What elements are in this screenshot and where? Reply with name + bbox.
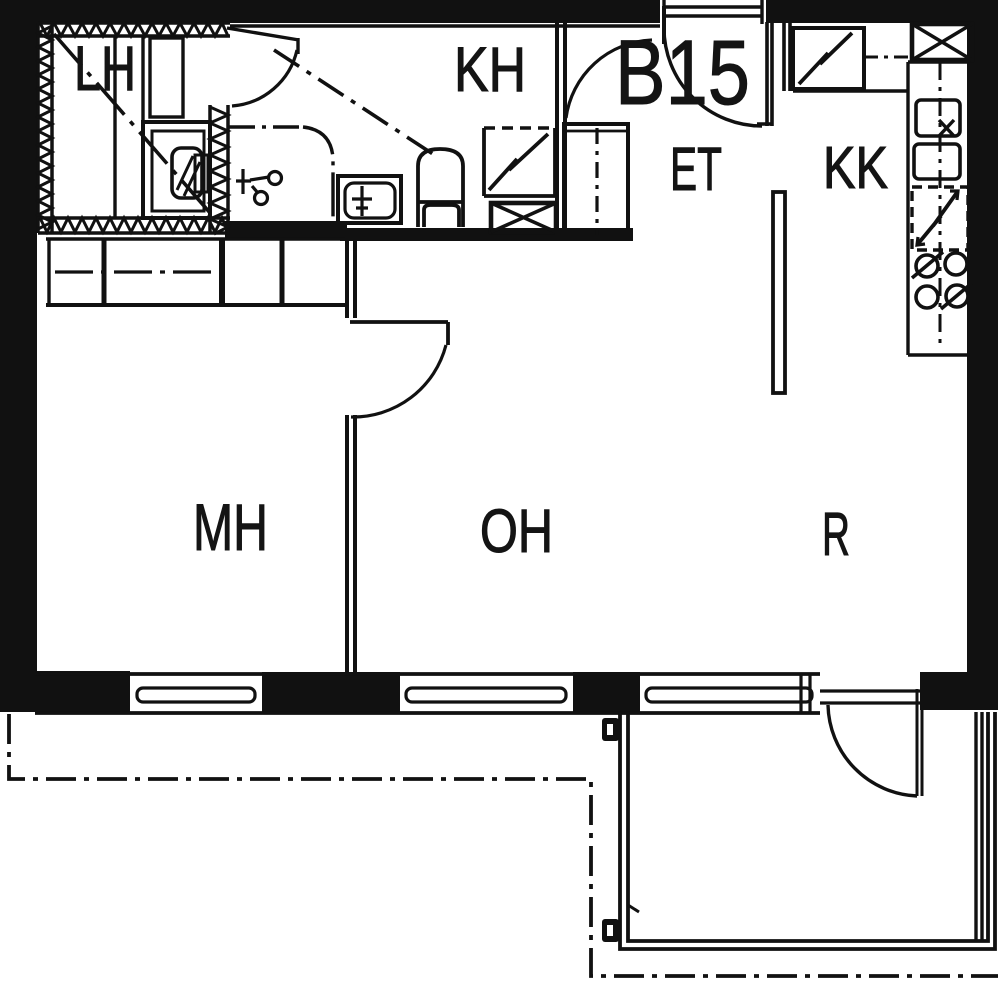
svg-text:KK: KK xyxy=(823,135,888,201)
svg-text:MH: MH xyxy=(193,490,268,564)
svg-text:LH: LH xyxy=(74,34,136,104)
svg-text:ET: ET xyxy=(670,135,722,203)
svg-text:KH: KH xyxy=(454,35,526,105)
svg-text:OH: OH xyxy=(480,497,553,565)
svg-text:R: R xyxy=(822,500,850,568)
svg-text:B15: B15 xyxy=(615,22,750,124)
